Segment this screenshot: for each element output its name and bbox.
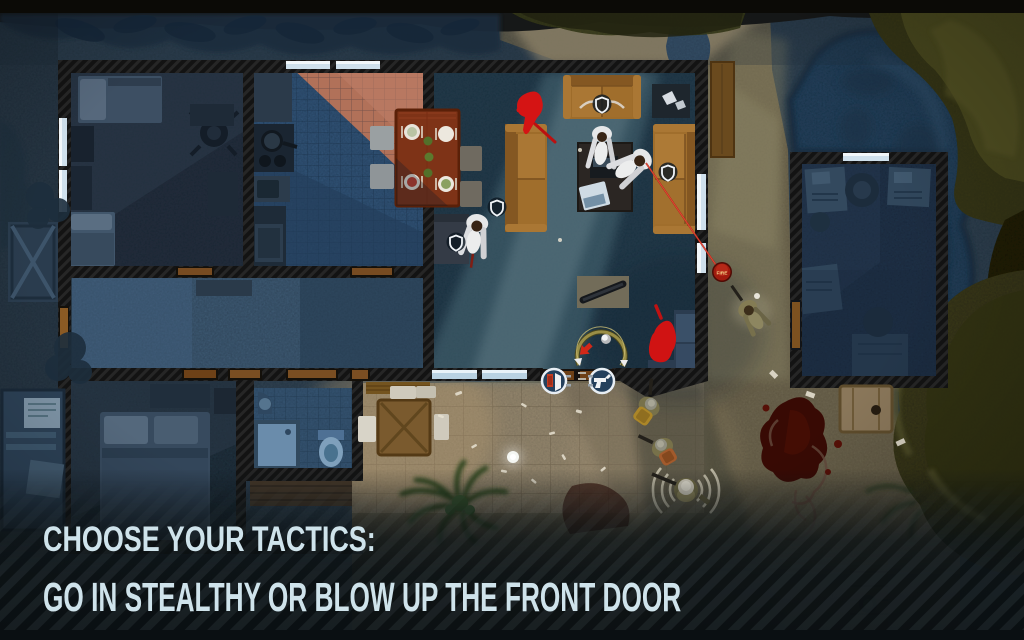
- svg-text:GO IN STEALTHY OR BLOW UP THE: GO IN STEALTHY OR BLOW UP THE FRONT DOOR: [43, 575, 681, 620]
- svg-text:CHOOSE YOUR TACTICS:: CHOOSE YOUR TACTICS:: [43, 520, 376, 559]
